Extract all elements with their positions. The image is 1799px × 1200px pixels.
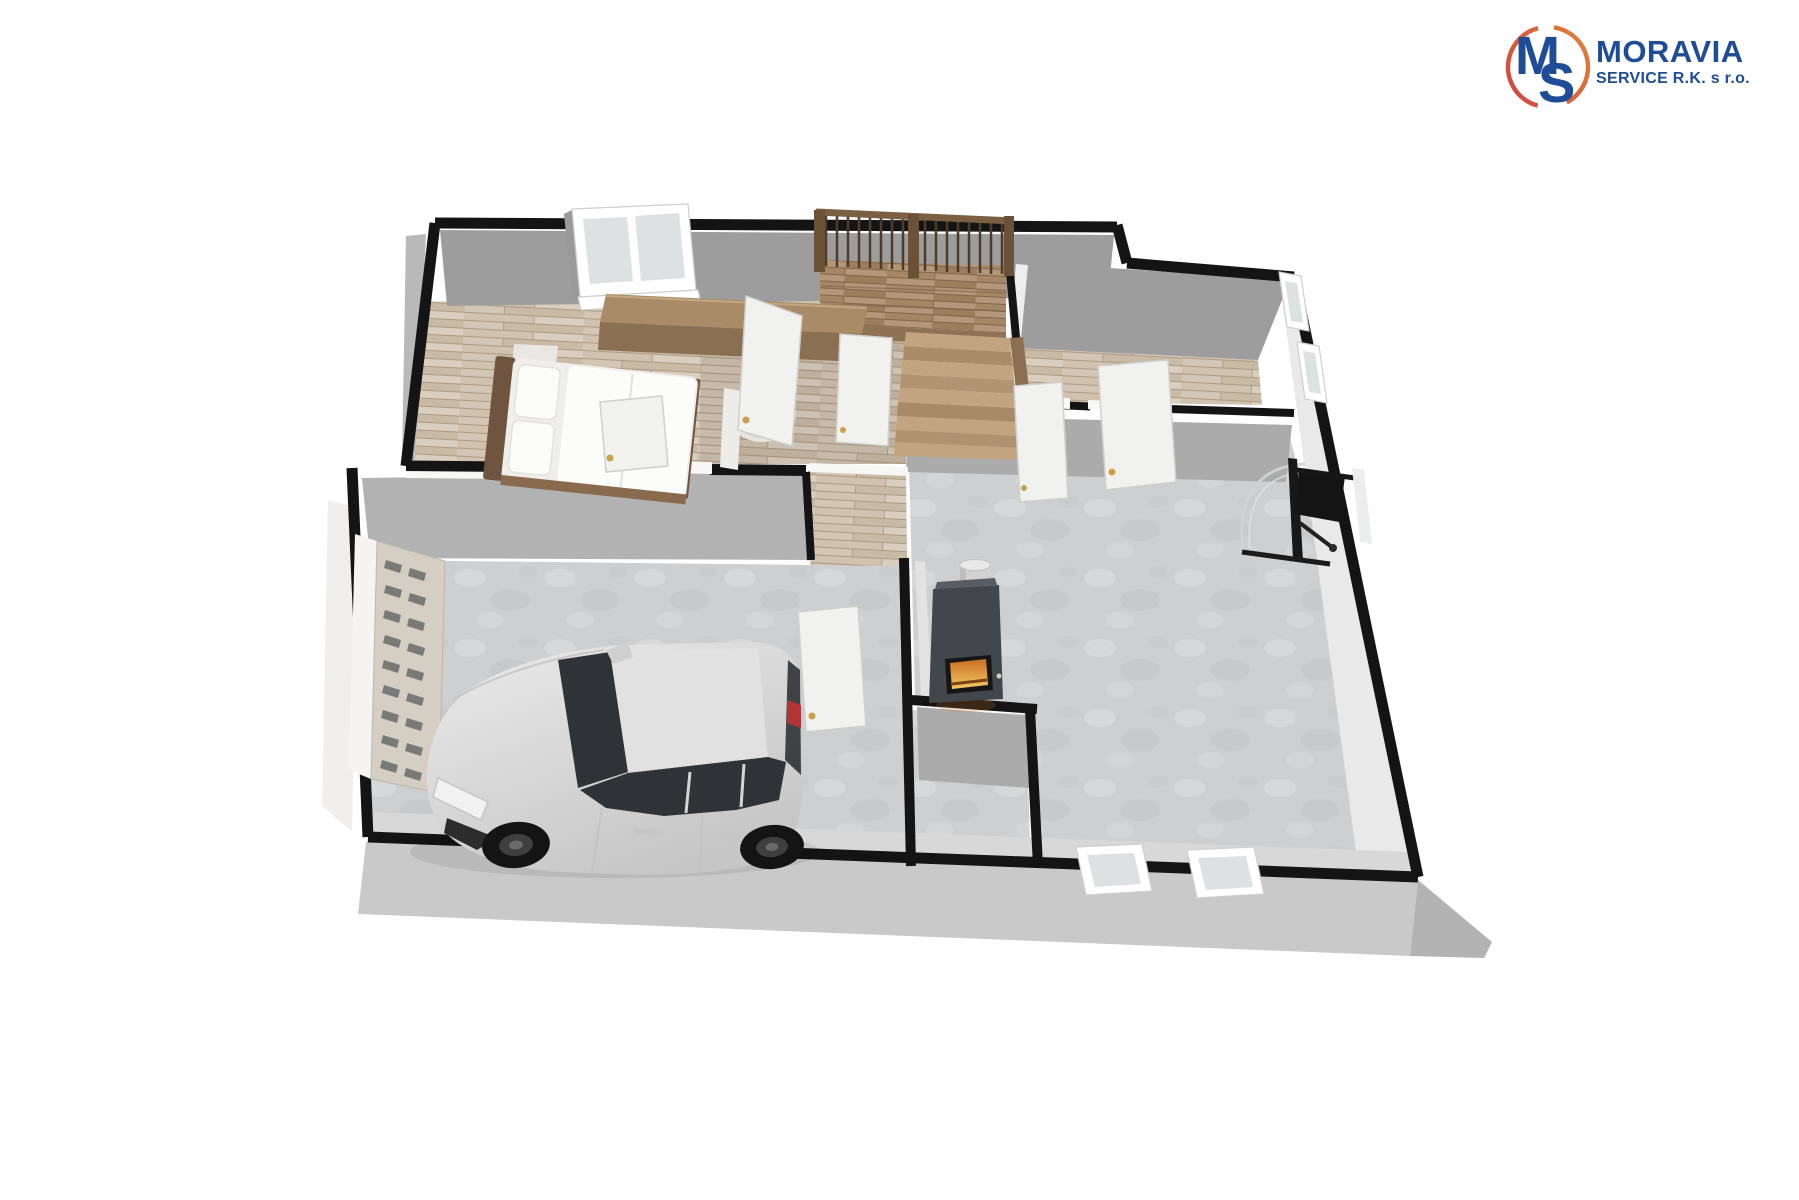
door-corridor-east <box>1098 360 1176 490</box>
south-window-right <box>1187 847 1264 898</box>
logo-monogram-s: S <box>1538 51 1575 114</box>
wood-stove <box>929 560 1003 713</box>
small-room-north-face <box>917 707 1032 788</box>
logo-title: MORAVIA <box>1596 34 1744 69</box>
door-under-stairs <box>836 334 892 446</box>
logo-subtitle: SERVICE R.K. s r.o. <box>1596 70 1750 87</box>
east-wall-window-upper <box>1279 272 1309 331</box>
door-garage <box>798 606 866 732</box>
bedroom-window <box>564 204 701 310</box>
floor-plan-rendering: M S MORAVIA SERVICE R.K. s r.o. <box>0 0 1799 1200</box>
door-bedroom <box>600 396 668 472</box>
logo: M S MORAVIA SERVICE R.K. s r.o. <box>1499 18 1750 116</box>
door-stair-hall <box>738 296 802 446</box>
door-corridor-west <box>1014 382 1068 502</box>
sideboard <box>598 294 868 362</box>
page: M S MORAVIA SERVICE R.K. s r.o. <box>0 0 1799 1200</box>
south-window-left <box>1076 844 1152 895</box>
double-bed <box>482 356 700 505</box>
